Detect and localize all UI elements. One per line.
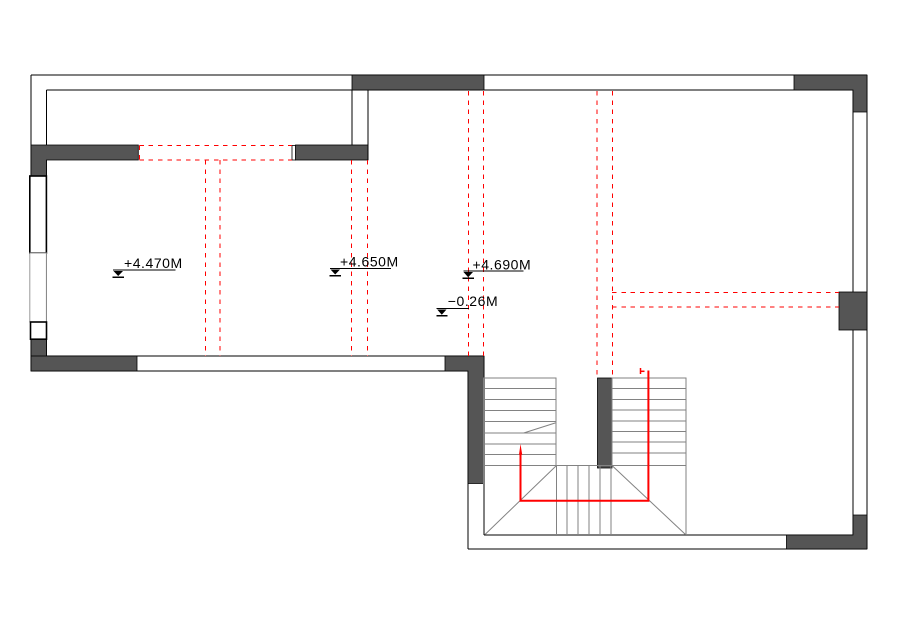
svg-text:+4.470M: +4.470M (124, 255, 183, 271)
svg-text:+4.650M: +4.650M (340, 254, 399, 270)
svg-text:−0.26M: −0.26M (448, 293, 498, 309)
svg-text:+4.690M: +4.690M (473, 256, 532, 272)
